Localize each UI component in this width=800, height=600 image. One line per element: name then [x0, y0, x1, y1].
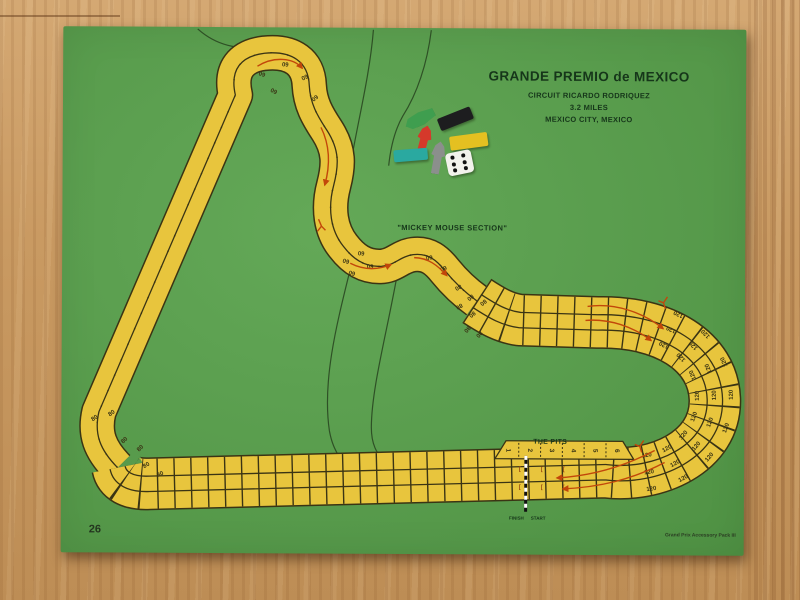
speed-label: 120: [712, 390, 718, 401]
pit-bracket-mark: [: [519, 485, 521, 491]
page-number: 26: [89, 523, 101, 535]
pit-number: 3: [548, 449, 555, 453]
die-pip: [462, 159, 467, 164]
pit-number: 2: [526, 449, 533, 453]
pit-bracket-mark: [: [541, 485, 543, 491]
die-pip: [450, 155, 455, 160]
pit-bracket-mark: [: [519, 467, 521, 473]
speed-label: 60: [357, 249, 365, 256]
pit-number: 4: [570, 449, 577, 453]
pit-number: 1: [504, 448, 511, 452]
pit-number: 6: [613, 449, 620, 453]
speed-label: 80: [136, 444, 145, 453]
die-pip: [461, 153, 466, 158]
board-title: GRANDE PREMIO de MEXICO: [459, 68, 719, 84]
pit-bracket-mark: [: [541, 467, 543, 473]
mickey-mouse-section-label: "MICKEY MOUSE SECTION": [352, 223, 552, 233]
speed-label: 80: [462, 324, 471, 333]
die-pip: [464, 166, 469, 171]
title-block: GRANDE PREMIO de MEXICO CIRCUIT RICARDO …: [459, 68, 719, 126]
pit-number: 5: [591, 449, 598, 453]
start-label: START: [531, 516, 573, 521]
speed-label: 60: [366, 262, 374, 269]
credit-text: Grand Prix Accessory Pack III: [665, 532, 736, 538]
speed-label: 60: [269, 86, 278, 95]
game-board: 123456 [[[[[[ 60606060606060606060608080…: [61, 26, 747, 556]
speed-label: 120: [729, 389, 735, 400]
pits-label: THE PITS: [510, 439, 590, 446]
pit-bracket-mark: [: [563, 467, 565, 473]
speed-label: 80: [120, 436, 129, 445]
finish-label: FINISH: [482, 515, 524, 520]
circuit-city: MEXICO CITY, MEXICO: [459, 113, 719, 126]
die-pip: [453, 168, 458, 173]
die-pip: [451, 162, 456, 167]
photo-table-background: 123456 [[[[[[ 60606060606060606060608080…: [0, 0, 800, 600]
speed-label: 60: [281, 60, 289, 67]
pit-bracket-mark: [: [563, 485, 565, 491]
speed-label: 120: [695, 390, 701, 401]
